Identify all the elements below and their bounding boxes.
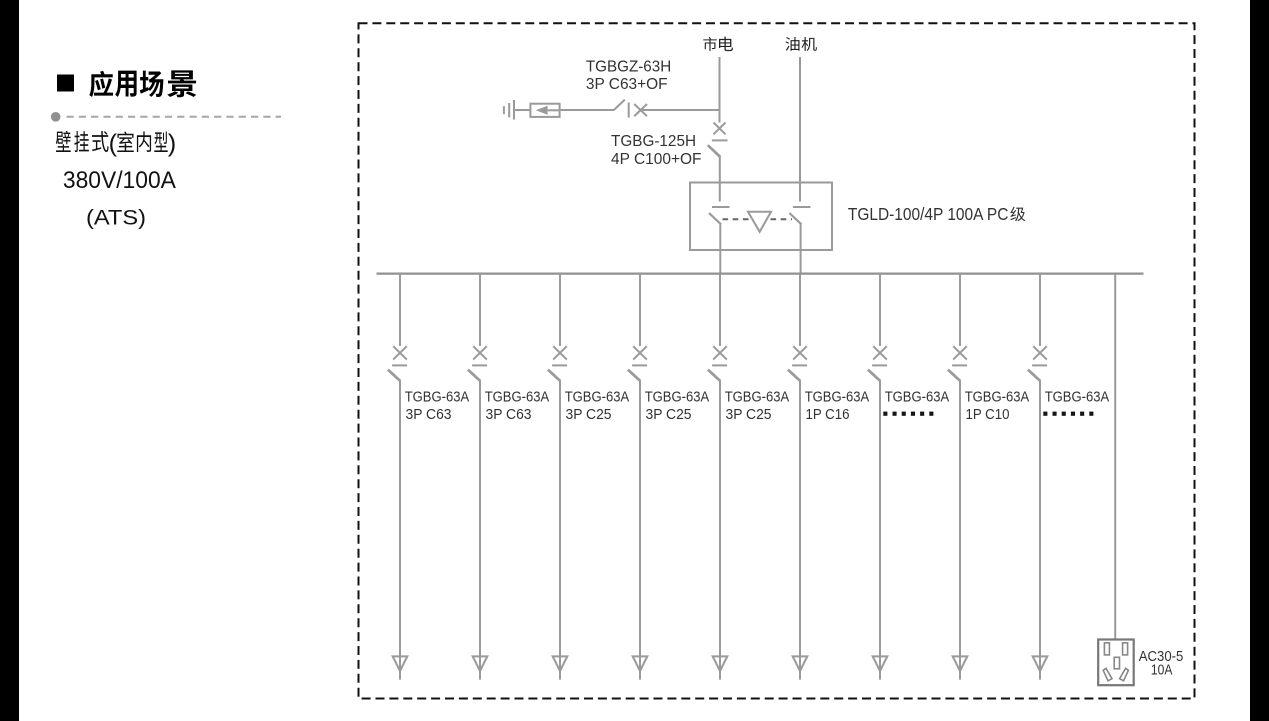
- svg-text:380V/100A: 380V/100A: [63, 167, 177, 194]
- svg-text:TGBG-63A: TGBG-63A: [645, 389, 710, 405]
- svg-text:3P C63+OF: 3P C63+OF: [586, 76, 668, 93]
- svg-text:10A: 10A: [1151, 663, 1173, 679]
- svg-text:TGBG-63A: TGBG-63A: [965, 389, 1030, 405]
- svg-text:3P C63: 3P C63: [406, 407, 452, 423]
- svg-text:1P C16: 1P C16: [806, 407, 850, 423]
- svg-text:3P C25: 3P C25: [566, 407, 612, 423]
- svg-text:TGBG-63A: TGBG-63A: [565, 389, 630, 405]
- svg-text:TGBG-125H: TGBG-125H: [611, 133, 696, 150]
- svg-text:1P C10: 1P C10: [966, 407, 1010, 423]
- svg-text:(: (: [109, 130, 118, 158]
- svg-text:TGBG-63A: TGBG-63A: [885, 389, 950, 405]
- svg-text:(ATS): (ATS): [86, 207, 146, 230]
- svg-text:TGBG-63A: TGBG-63A: [805, 389, 870, 405]
- svg-text:TGBG-63A: TGBG-63A: [1045, 389, 1110, 405]
- svg-text:3P C25: 3P C25: [726, 407, 772, 423]
- svg-text:TGBG-63A: TGBG-63A: [485, 389, 550, 405]
- svg-text:3P C25: 3P C25: [646, 407, 692, 423]
- svg-text:3P C63: 3P C63: [486, 407, 532, 423]
- svg-text:): ): [168, 130, 176, 158]
- svg-text:TGLD-100/4P 100A PC: TGLD-100/4P 100A PC: [848, 204, 1009, 224]
- svg-text:4P C100+OF: 4P C100+OF: [611, 151, 702, 168]
- svg-text:TGBGZ-63H: TGBGZ-63H: [586, 58, 671, 75]
- svg-text:TGBG-63A: TGBG-63A: [405, 389, 470, 405]
- svg-text:TGBG-63A: TGBG-63A: [725, 389, 790, 405]
